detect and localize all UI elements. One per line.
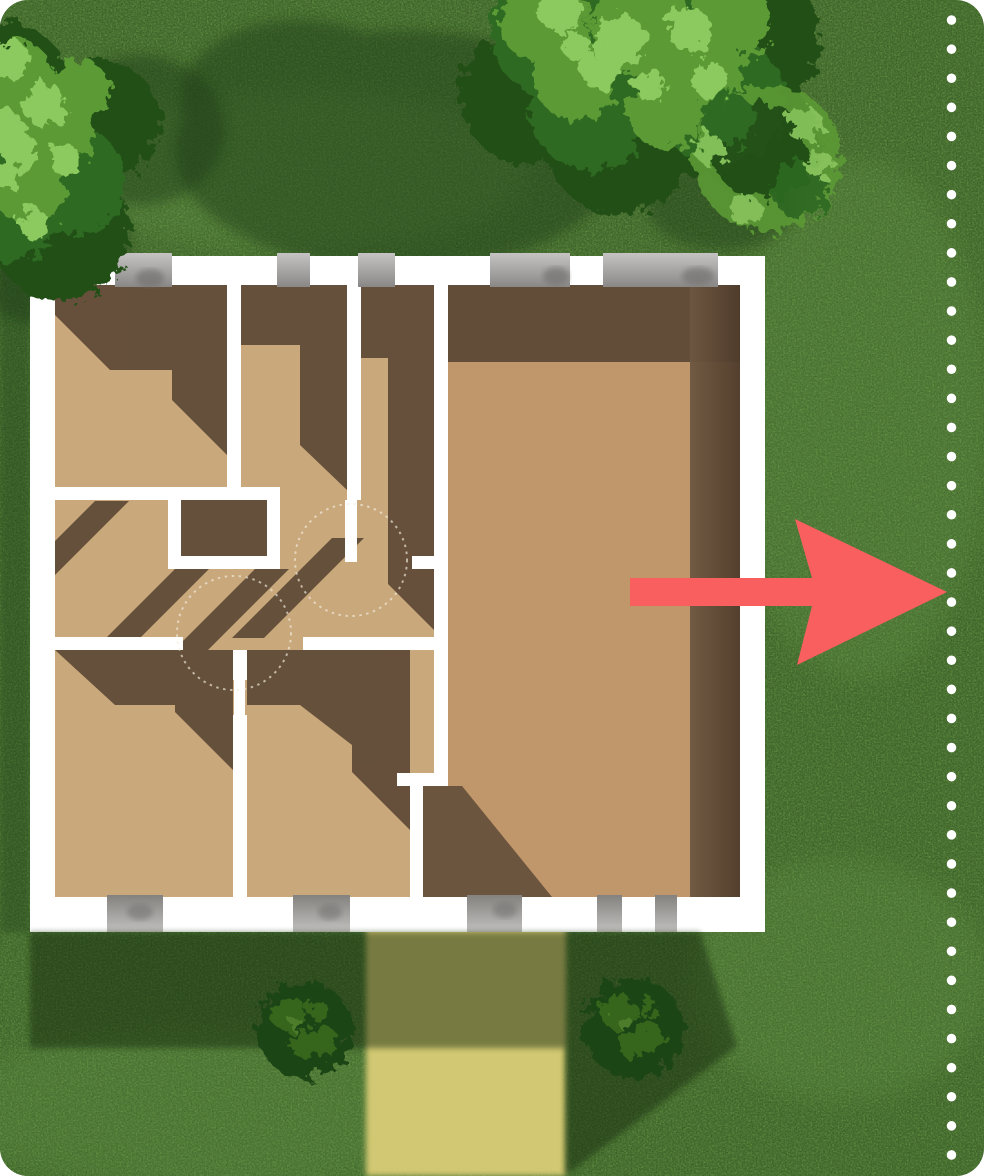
bush-bottom-left — [257, 982, 353, 1078]
illustration-stage — [0, 0, 984, 1176]
scene-card — [0, 0, 984, 1176]
wall-horizontal-1 — [55, 487, 280, 500]
bush-ring-top-right — [694, 84, 842, 232]
wall-vertical-4-upper — [233, 650, 247, 680]
wall-vertical-1 — [227, 285, 241, 488]
wall-vertical-2 — [347, 285, 361, 500]
door-leaf-2 — [234, 676, 245, 716]
wall-bath-right — [267, 500, 280, 556]
window — [358, 253, 395, 287]
wall-nub — [412, 556, 434, 569]
house-left-shadow — [0, 262, 30, 932]
bush-bottom-right — [583, 978, 683, 1078]
door-leaf-1 — [345, 500, 357, 562]
scene-canvas — [0, 0, 984, 1176]
wall-stub-entry — [397, 773, 448, 786]
wall-horizontal-2b — [303, 637, 434, 650]
wall-horizontal-2a — [55, 637, 183, 650]
window — [277, 253, 310, 287]
wall-big-room-left — [434, 285, 448, 773]
window — [597, 895, 622, 932]
wall-bath-bottom — [168, 556, 280, 569]
window — [655, 895, 677, 932]
wall-vertical-4-lower — [233, 715, 247, 897]
wall-big-room-left-lower — [410, 786, 423, 897]
